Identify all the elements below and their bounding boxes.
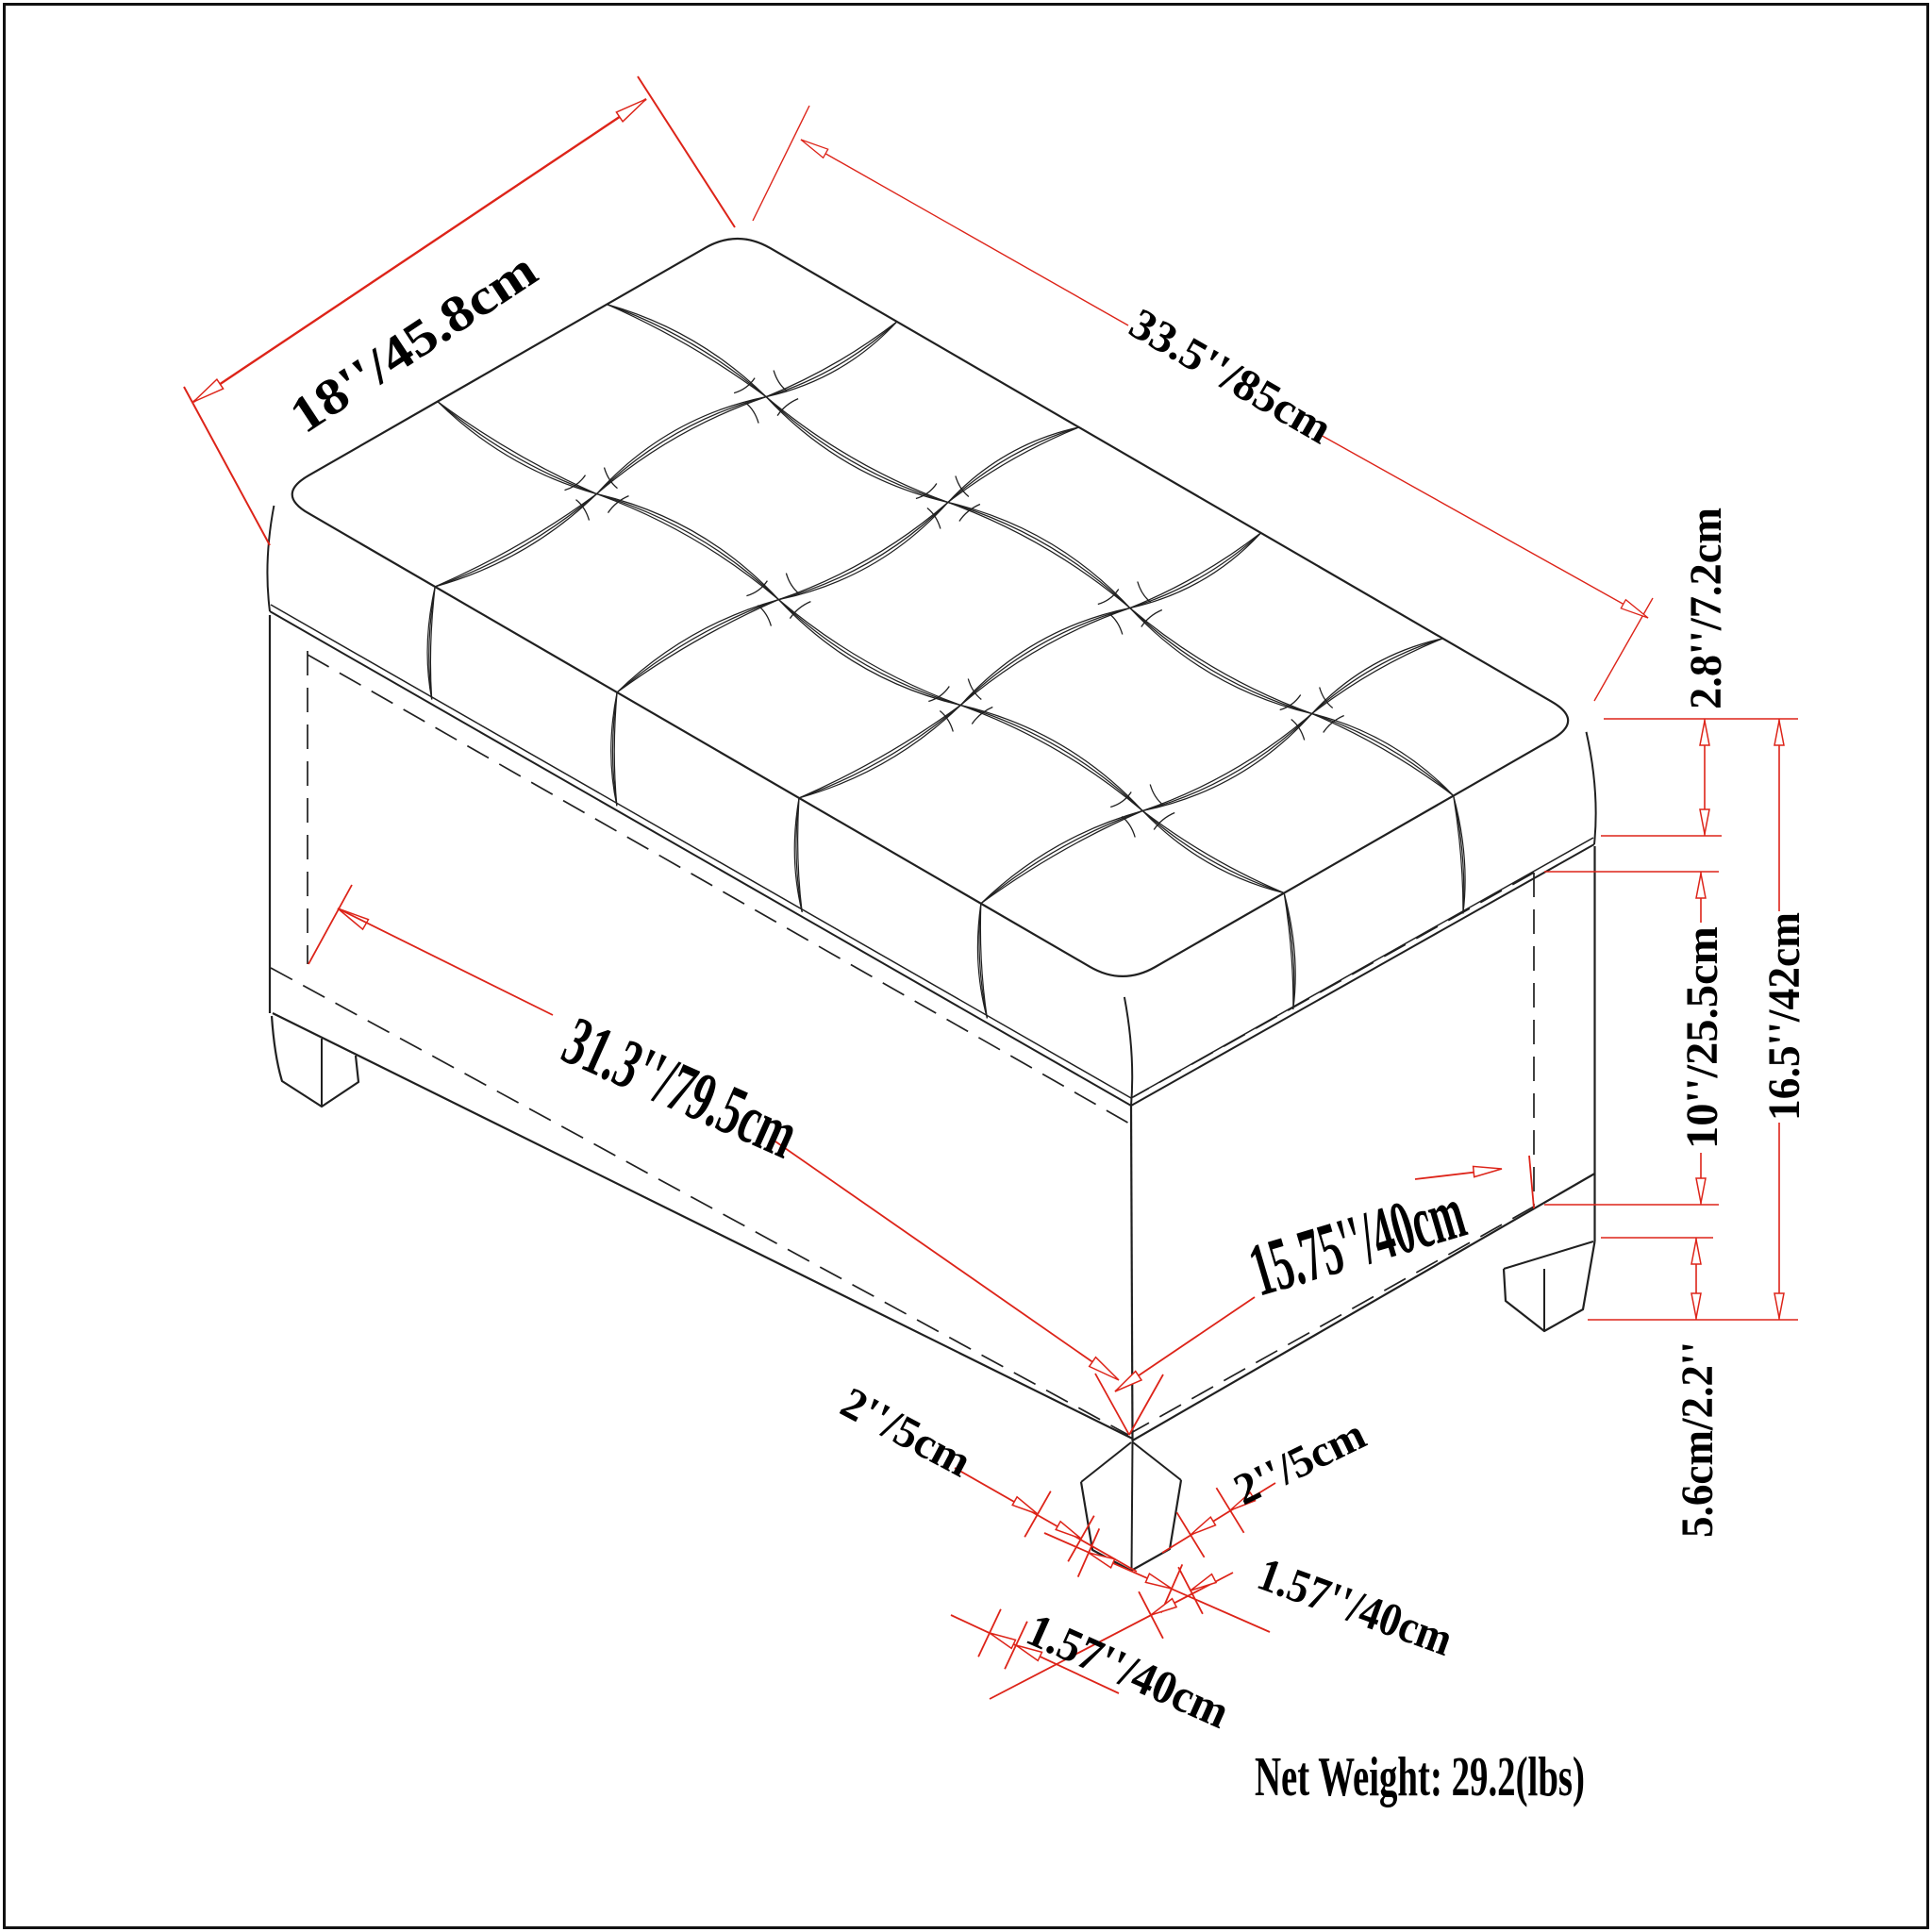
svg-text:16.5''/42cm: 16.5''/42cm <box>1759 912 1809 1121</box>
svg-text:2.8''/7.2cm: 2.8''/7.2cm <box>1681 508 1731 709</box>
svg-text:Net Weight: 29.2(lbs): Net Weight: 29.2(lbs) <box>1255 1745 1585 1807</box>
svg-text:10''/25.5cm: 10''/25.5cm <box>1677 926 1727 1149</box>
svg-text:5.6cm/2.2'': 5.6cm/2.2'' <box>1673 1341 1723 1538</box>
